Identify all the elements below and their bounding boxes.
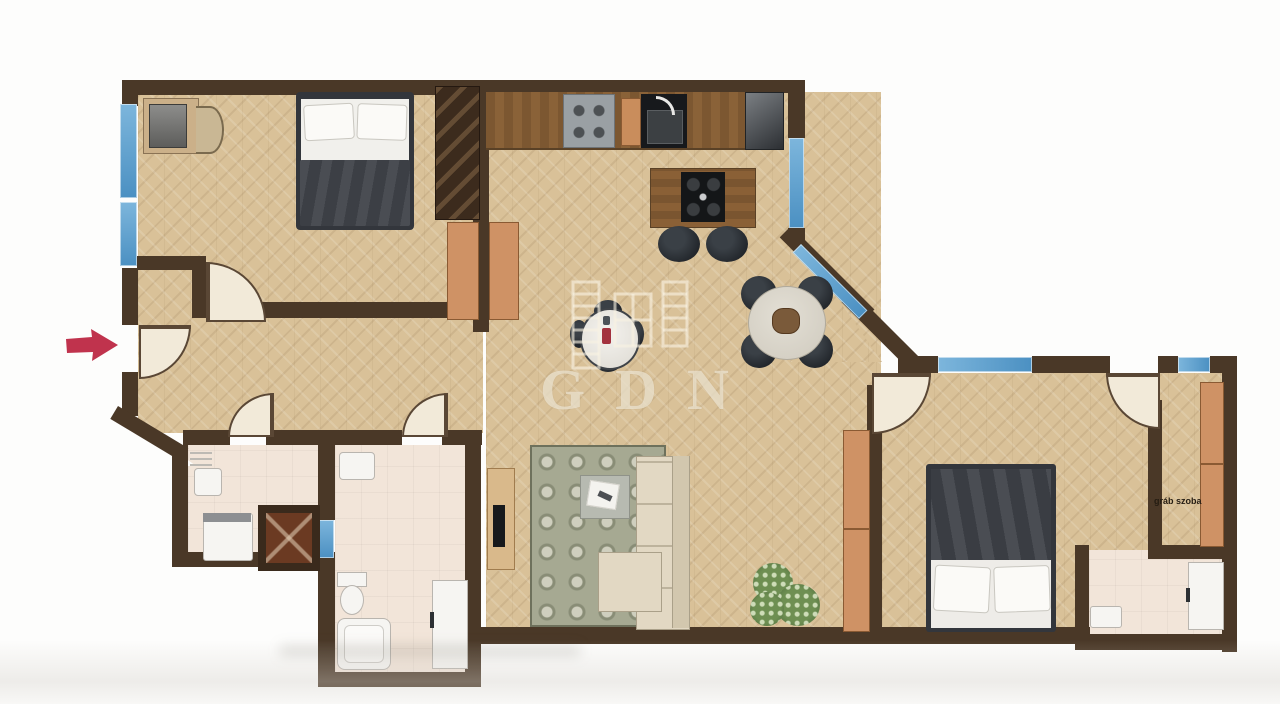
wall-rightsec-top-b [1032, 356, 1110, 373]
window-bedroom1-upper [120, 104, 137, 198]
wardrobe-bedroom1 [435, 86, 480, 220]
window-bathroom-interior [319, 520, 334, 558]
fridge [745, 92, 784, 150]
laundry-sink [194, 468, 222, 496]
wall-laundry-bath-lower [318, 557, 335, 687]
dresser-kitchen-side [489, 222, 519, 320]
shower-right [1188, 562, 1224, 630]
window-bedroom1-lower [120, 202, 137, 266]
dresser-bedroom1 [447, 222, 479, 320]
tv [493, 505, 505, 547]
wall-wardrobe-bottom [1148, 545, 1237, 559]
wall-laundry-bath-upper [318, 445, 335, 520]
window-kitchen [789, 138, 804, 228]
wall-rightsec-top-a [898, 356, 938, 373]
wall-hall-bath-b [266, 430, 402, 445]
window-bedroom2 [938, 357, 1032, 372]
wall-rightsec-top-c [1158, 356, 1178, 373]
floor-shadow [280, 645, 580, 657]
cutting-board [621, 98, 641, 146]
desk-laptop [149, 104, 187, 148]
bed1-pillow-right [356, 103, 407, 141]
wall-entry-stub [137, 256, 195, 270]
bar-stool-2 [706, 226, 748, 262]
washing-machine-panel [203, 513, 251, 522]
wall-right-outer [1222, 356, 1237, 652]
floorplan-canvas: gráb szoba GDN [0, 0, 1280, 704]
bed2-pillow-right [993, 565, 1051, 613]
dining-centerpiece [772, 308, 800, 334]
window-wardrobe-room [1178, 357, 1210, 372]
shower-left-handle [430, 612, 434, 628]
bath-left-toilet-bowl [340, 585, 364, 615]
utility-shaft-inner [266, 513, 312, 563]
laundry-shelf-icon [190, 448, 212, 466]
wall-hall-bath-a [183, 430, 230, 445]
wall-entry-stub-vert [192, 256, 206, 318]
bath-right-sink [1090, 606, 1122, 628]
wall-bathroom-left-bottom [318, 672, 481, 687]
bar-stool-1 [658, 226, 700, 262]
wall-left-mid [122, 268, 138, 325]
bed2-pillow-left [933, 565, 991, 614]
entrance-arrow-icon [66, 328, 118, 362]
sofa-chaise [598, 552, 662, 612]
wardrobe-living [843, 430, 870, 632]
bath-left-sink [339, 452, 375, 480]
kitchen-sink-basin [647, 110, 683, 144]
gdn-watermark: GDN [540, 356, 759, 423]
wall-kitchen-right-upper [788, 92, 805, 138]
sofa-backrest [672, 456, 689, 628]
wall-left-upper [122, 80, 138, 106]
wardrobe-room-closet [1200, 382, 1224, 547]
bed1-pillow-left [303, 103, 355, 142]
bathtub-inner [344, 625, 384, 663]
shower-right-handle [1186, 588, 1190, 602]
plant-leaf-3 [750, 592, 784, 626]
desk-chair [196, 106, 224, 154]
wall-laundry-left [172, 445, 188, 567]
stove [563, 94, 615, 148]
bed2-blanket [931, 469, 1051, 567]
wall-bath2-bottom [1075, 634, 1237, 650]
wardrobe-room-label: gráb szoba [1154, 496, 1202, 506]
cooktop [681, 172, 725, 222]
bed1-blanket [300, 160, 410, 226]
